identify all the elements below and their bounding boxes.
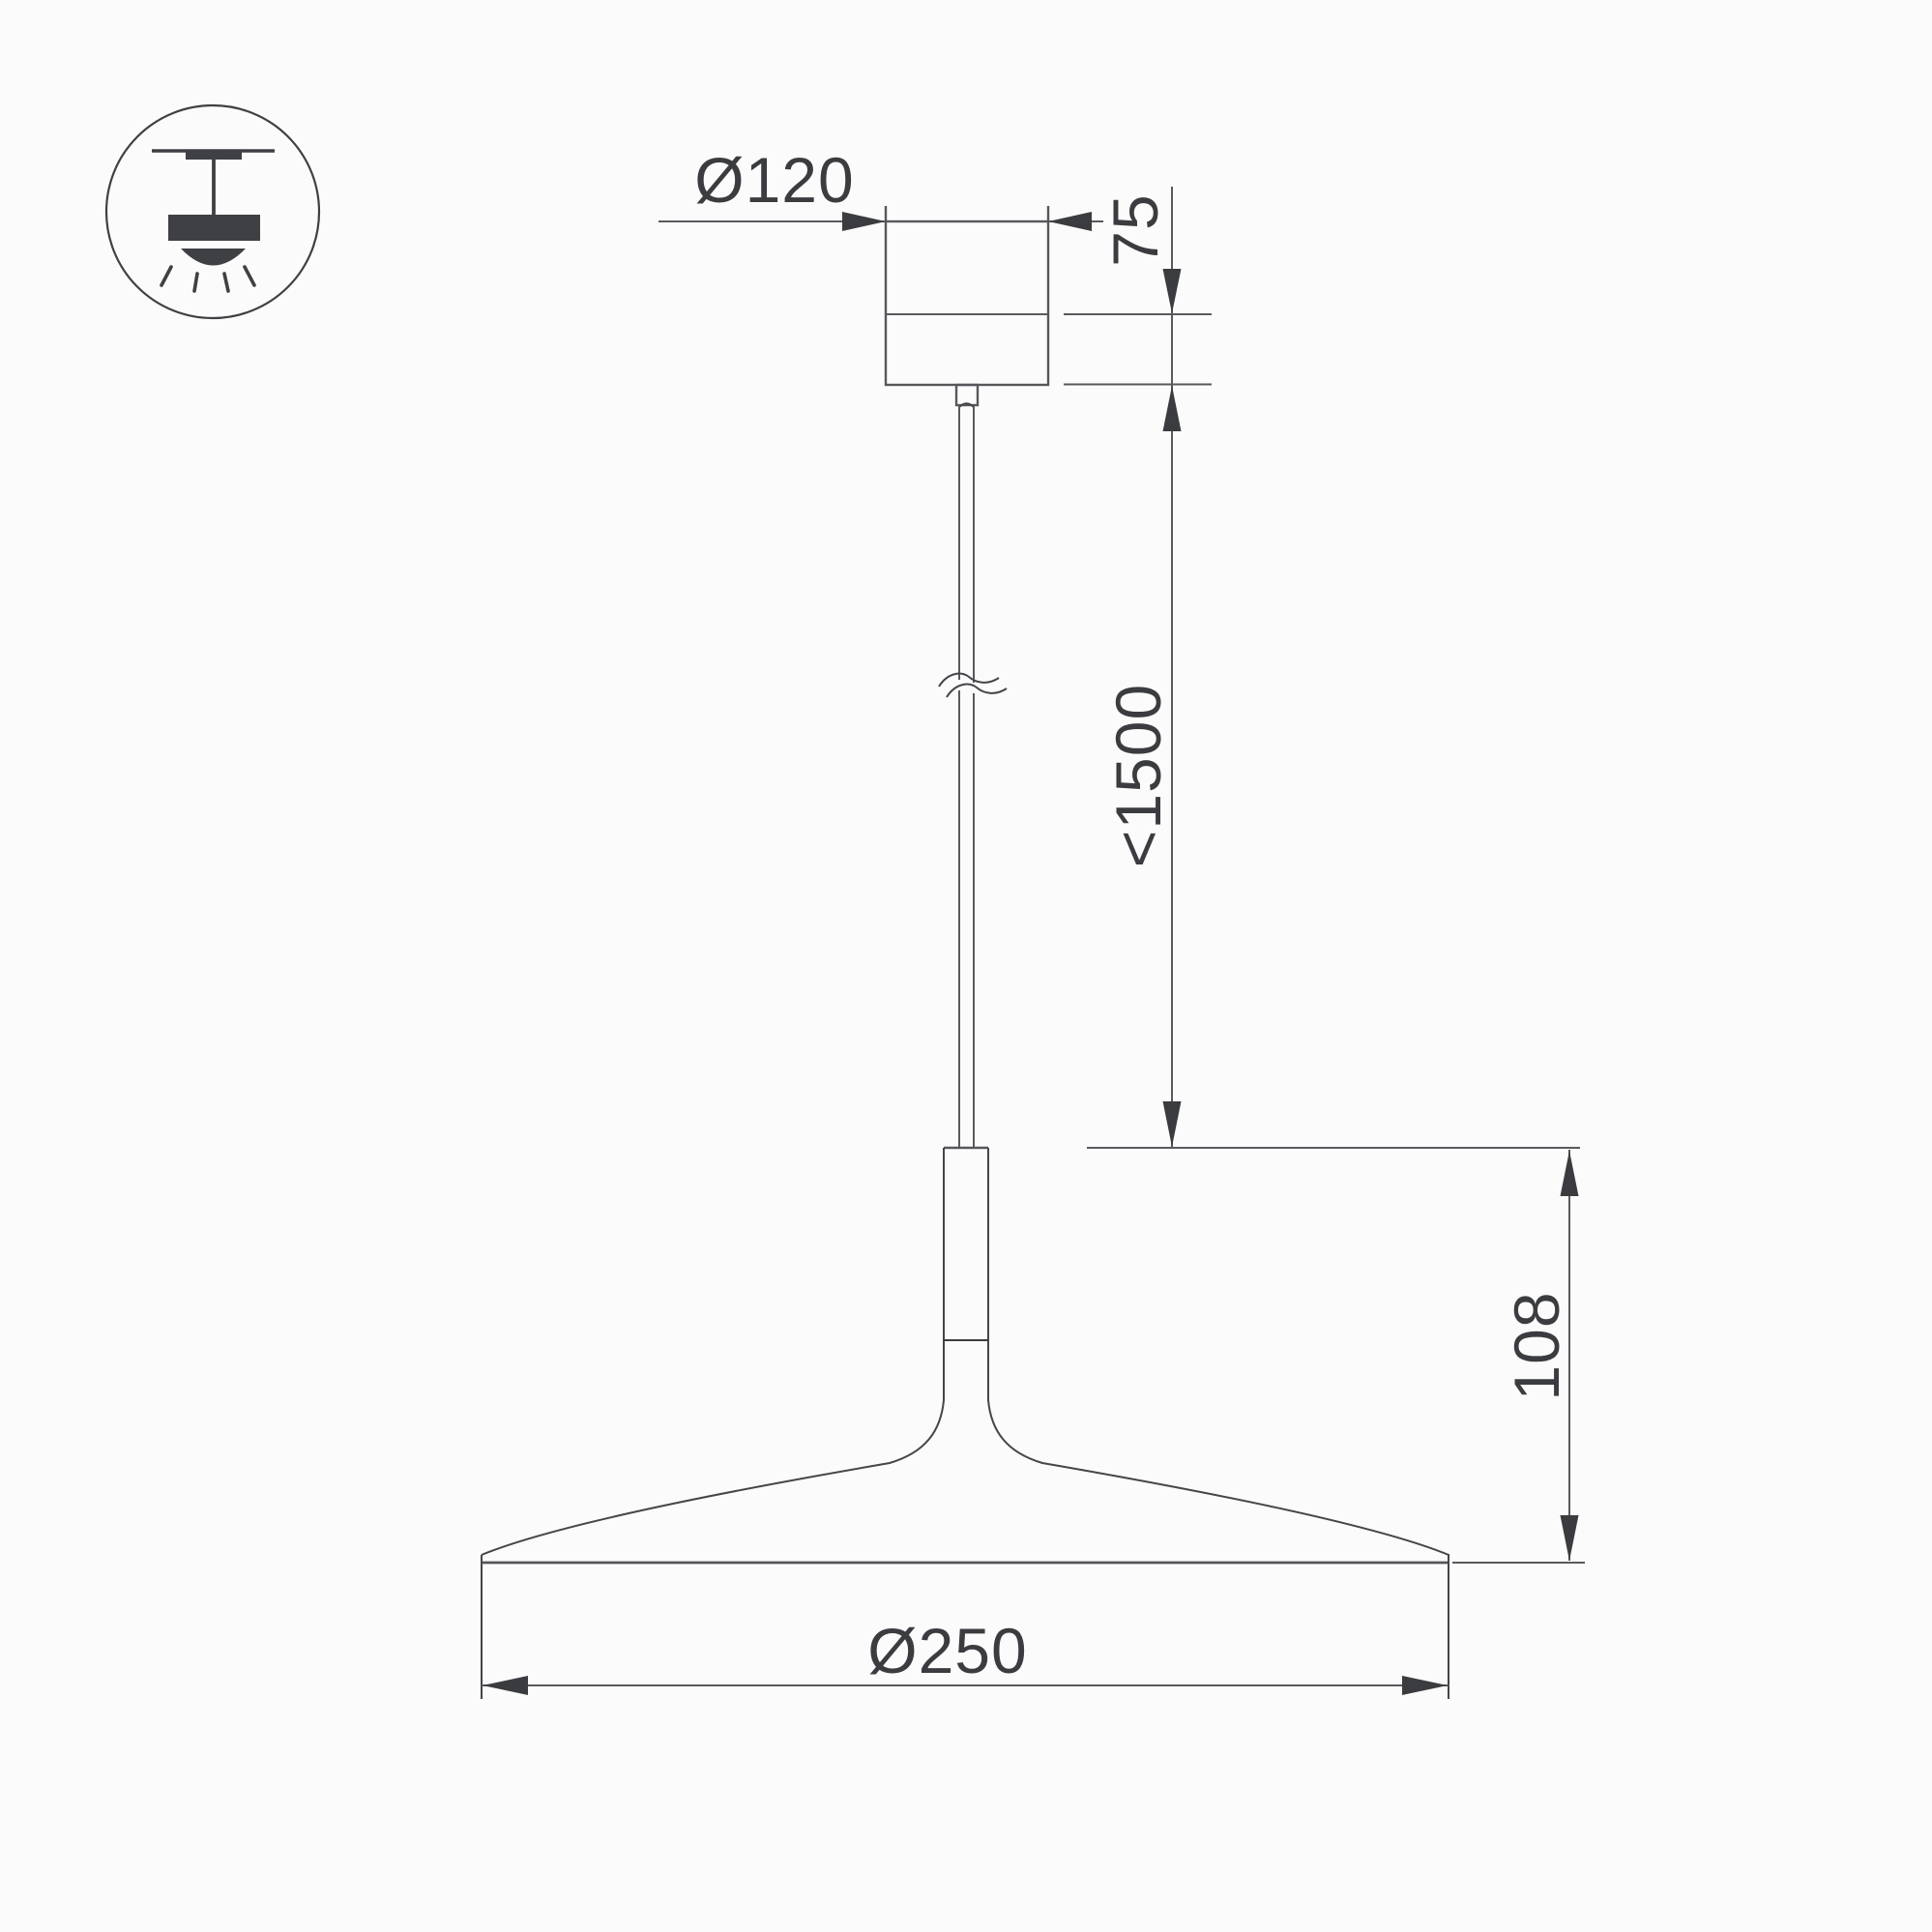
drawing-canvas: Ø120 75 <1500 108 — [0, 0, 1932, 1932]
dimension-canopy-diameter: Ø120 — [659, 144, 1103, 231]
dimension-suspension-length: <1500 — [1087, 684, 1580, 1148]
dim108-arrow-down — [1561, 1515, 1579, 1561]
icon-light-rays — [161, 267, 254, 291]
lamp-shade — [482, 1148, 1449, 1563]
icon-mount-bar — [186, 153, 242, 161]
shade-right-profile — [988, 1148, 1449, 1555]
icon-diffuser-dome — [181, 249, 246, 266]
icon-lamp-body — [168, 215, 260, 241]
suspension-cable — [939, 406, 1007, 1148]
dim108-arrow-up — [1561, 1151, 1579, 1196]
dim120-label: Ø120 — [694, 144, 854, 216]
dim1500-label: <1500 — [1102, 684, 1174, 867]
dimension-canopy-height: 75 — [1064, 187, 1212, 1147]
ceiling-canopy — [886, 206, 1048, 407]
canopy-body — [886, 221, 1048, 385]
break-wave-lower — [947, 685, 1007, 697]
pendant-lamp-dimension-drawing: Ø120 75 <1500 108 — [0, 0, 1932, 1932]
dimension-shade-diameter: Ø250 — [482, 1554, 1449, 1699]
dim75-arrow-down — [1163, 269, 1182, 313]
shade-left-profile — [482, 1148, 944, 1555]
dim75-arrow-up-shared — [1163, 386, 1182, 431]
dim120-arrow-right — [1048, 212, 1092, 231]
dim108-label: 108 — [1501, 1291, 1572, 1400]
dim75-label: 75 — [1099, 193, 1171, 266]
dim1500-arrow-down — [1163, 1101, 1182, 1147]
dim250-arrow-left — [483, 1676, 528, 1695]
pendant-lamp-icon — [106, 105, 319, 318]
dimension-shade-height: 108 — [1452, 1150, 1585, 1563]
cable-gland — [956, 385, 978, 405]
dim250-label: Ø250 — [867, 1615, 1027, 1686]
dim250-arrow-right — [1402, 1676, 1448, 1695]
